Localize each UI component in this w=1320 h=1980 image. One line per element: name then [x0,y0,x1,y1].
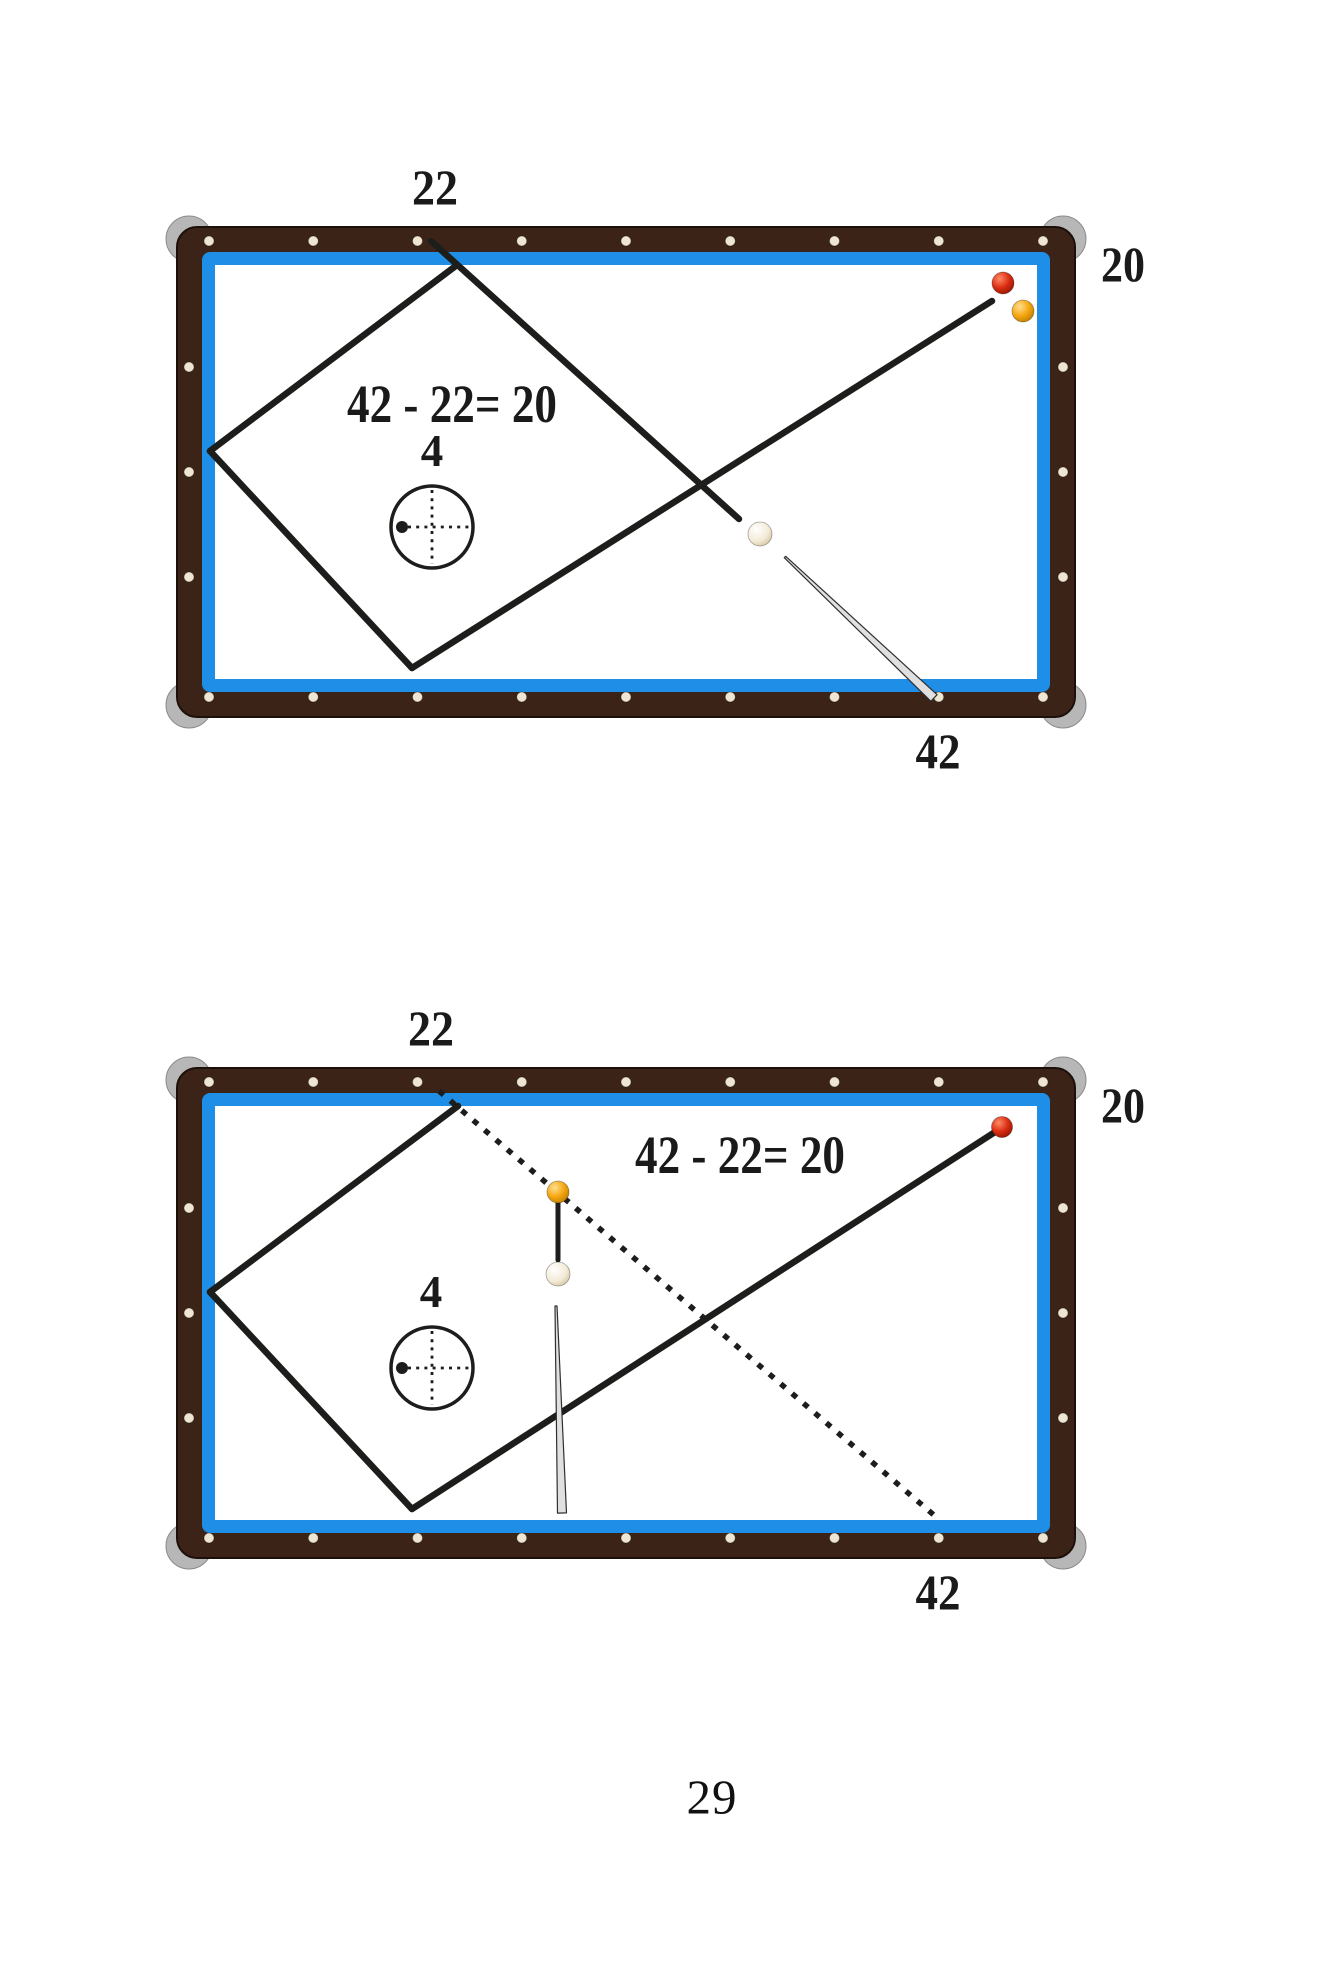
cue-ball [546,1262,570,1286]
rail-dot [184,467,194,477]
rail-dot [517,1533,527,1543]
rail-number-22: 22 [408,1000,454,1056]
rail-dot [184,362,194,372]
diagrams-canvas: 22204242 - 22= 20422204242 - 22= 204 [0,0,1320,1980]
rail-dot [830,692,840,702]
rail-number-22: 22 [412,159,458,215]
page-number: 29 [687,1773,738,1822]
rail-dot [934,1077,944,1087]
rail-number-42: 42 [916,1564,961,1620]
rail-dot [517,692,527,702]
contact-point-dot [396,521,408,533]
rail-dot [725,236,735,246]
cue-ball-contact-indicator [391,1327,473,1409]
rail-dot [934,236,944,246]
rail-dot [204,236,214,246]
rail-dot [1058,1308,1068,1318]
rail-dot [621,236,631,246]
rail-dot [725,1533,735,1543]
rail-dot [413,1533,423,1543]
rail-dot [204,1077,214,1087]
rail-dot [308,1077,318,1087]
rail-dot [1038,1533,1048,1543]
rail-dot [413,692,423,702]
tip-offset-4: 4 [420,1267,443,1317]
cue-ball-contact-indicator [391,486,473,568]
cue-ball [748,522,772,546]
felt [215,1106,1037,1520]
rail-dot [204,692,214,702]
rail-dot [413,236,423,246]
rail-dot [308,692,318,702]
rail-dot [830,1077,840,1087]
page: { "page": { "number": "29", "background"… [0,0,1320,1980]
book-page: 22204242 - 22= 20422204242 - 22= 204 29 [0,0,1320,1980]
rail-dot [413,1077,423,1087]
diagram-first-shot: 22204242 - 22= 204 [166,159,1145,779]
diagram-second-shot: 22204242 - 22= 204 [166,1000,1145,1620]
rail-dot [184,572,194,582]
rail-dot [621,692,631,702]
contact-point-dot [396,1362,408,1374]
rail-dot [184,1203,194,1213]
rail-dot [308,236,318,246]
rail-dot [184,1413,194,1423]
rail-dot [204,1533,214,1543]
formula: 42 - 22= 20 [347,374,557,434]
rail-dot [621,1533,631,1543]
rail-number-42: 42 [916,723,961,779]
rail-dot [1038,236,1048,246]
rail-dot [1058,572,1068,582]
red-ball [992,1117,1013,1138]
rail-dot [830,1533,840,1543]
felt [215,265,1037,679]
rail-dot [308,1533,318,1543]
rail-dot [1058,1203,1068,1213]
rail-dot [621,1077,631,1087]
rail-dot [1058,1413,1068,1423]
rail-dot [725,692,735,702]
rail-number-20: 20 [1101,1077,1145,1133]
rail-dot [517,1077,527,1087]
rail-dot [1038,692,1048,702]
yellow-ball [1012,300,1034,322]
rail-dot [1058,362,1068,372]
rail-dot [1058,467,1068,477]
yellow-ball [547,1181,569,1203]
rail-dot [1038,1077,1048,1087]
rail-dot [184,1308,194,1318]
tip-offset-4: 4 [421,426,444,476]
rail-dot [725,1077,735,1087]
red-ball [992,272,1014,294]
rail-dot [830,236,840,246]
rail-dot [934,1533,944,1543]
rail-number-20: 20 [1101,236,1145,292]
formula: 42 - 22= 20 [635,1125,845,1185]
rail-dot [517,236,527,246]
